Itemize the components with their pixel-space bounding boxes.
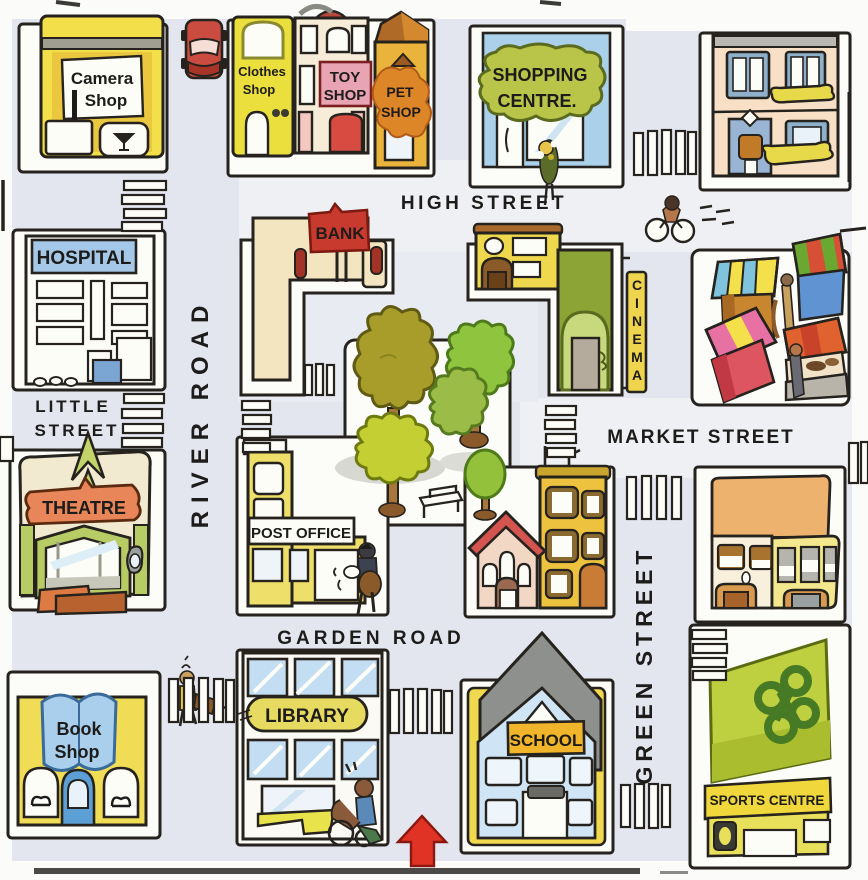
svg-text:HIGH STREET: HIGH STREET	[401, 193, 567, 214]
svg-text:LITTLE: LITTLE	[35, 397, 111, 416]
svg-text:THEATRE: THEATRE	[42, 498, 126, 518]
svg-text:N: N	[632, 313, 642, 329]
svg-text:CENTRE.: CENTRE.	[497, 91, 576, 111]
svg-text:Shop: Shop	[243, 82, 276, 97]
svg-text:Clothes: Clothes	[238, 64, 286, 79]
svg-text:MARKET STREET: MARKET STREET	[607, 427, 795, 448]
svg-text:SHOP: SHOP	[324, 87, 367, 104]
svg-text:Camera: Camera	[71, 69, 134, 88]
svg-text:I: I	[635, 295, 639, 311]
svg-text:STREET: STREET	[34, 421, 119, 440]
svg-text:BANK: BANK	[315, 224, 365, 243]
svg-text:RIVER ROAD: RIVER ROAD	[187, 298, 214, 529]
svg-text:HOSPITAL: HOSPITAL	[37, 248, 132, 269]
svg-text:E: E	[632, 331, 641, 347]
svg-text:SHOP: SHOP	[381, 104, 421, 120]
svg-text:LIBRARY: LIBRARY	[265, 706, 349, 727]
svg-text:Book: Book	[57, 719, 103, 739]
svg-text:PET: PET	[386, 84, 414, 100]
svg-text:GREEN STREET: GREEN STREET	[631, 546, 657, 785]
svg-text:Shop: Shop	[55, 742, 100, 762]
svg-text:TOY: TOY	[330, 69, 361, 86]
svg-text:GARDEN ROAD: GARDEN ROAD	[277, 628, 465, 649]
svg-text:A: A	[632, 367, 642, 383]
svg-text:SHOPPING: SHOPPING	[492, 65, 587, 85]
svg-text:SCHOOL: SCHOOL	[510, 731, 583, 750]
svg-text:M: M	[631, 349, 643, 365]
svg-text:C: C	[632, 277, 642, 293]
svg-text:Shop: Shop	[85, 91, 128, 110]
svg-text:SPORTS CENTRE: SPORTS CENTRE	[710, 793, 825, 808]
svg-text:POST OFFICE: POST OFFICE	[251, 525, 351, 542]
